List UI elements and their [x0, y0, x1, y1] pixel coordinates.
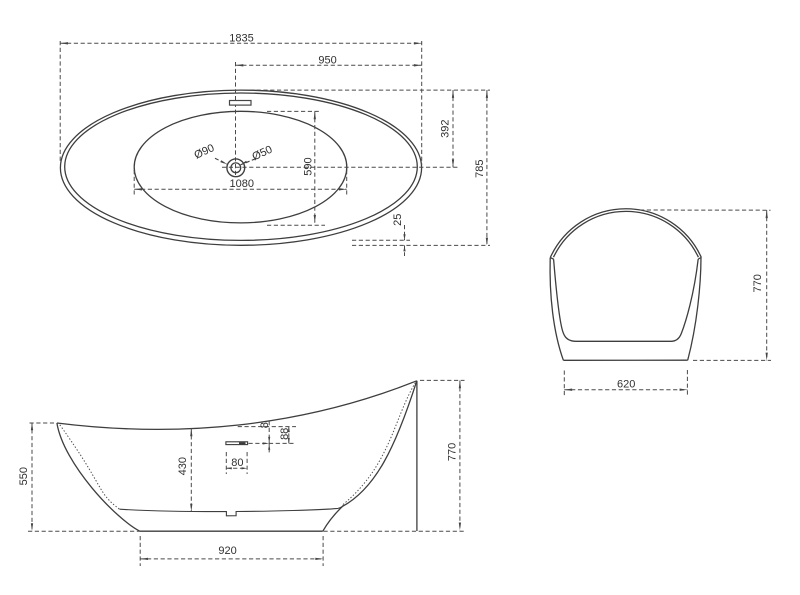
svg-text:8: 8 [259, 422, 271, 428]
svg-text:770: 770 [447, 443, 459, 461]
svg-text:550: 550 [18, 467, 30, 485]
svg-text:25: 25 [392, 214, 404, 226]
svg-text:1835: 1835 [229, 32, 253, 44]
svg-text:950: 950 [318, 54, 336, 66]
svg-text:430: 430 [177, 457, 189, 475]
svg-text:920: 920 [218, 545, 236, 557]
svg-text:785: 785 [474, 160, 486, 178]
svg-text:392: 392 [440, 120, 452, 138]
svg-text:590: 590 [302, 157, 314, 175]
svg-text:620: 620 [617, 379, 635, 391]
svg-text:1080: 1080 [230, 178, 254, 190]
svg-text:770: 770 [752, 274, 764, 292]
